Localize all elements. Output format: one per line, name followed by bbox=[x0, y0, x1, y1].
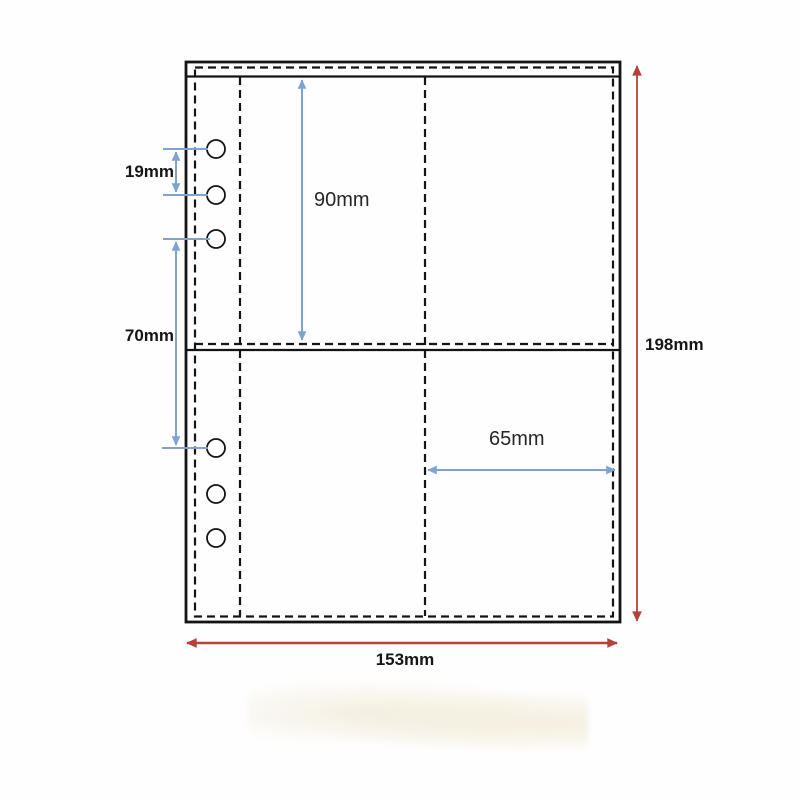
hole-group-gap-label: 70mm bbox=[110, 327, 174, 344]
stitch-border bbox=[195, 68, 613, 617]
watermark bbox=[248, 680, 588, 752]
pocket-height-label: 90mm bbox=[314, 190, 370, 210]
page-height-label: 198mm bbox=[645, 336, 704, 353]
binder-hole-1 bbox=[207, 140, 225, 158]
binder-hole-6 bbox=[207, 529, 225, 547]
binder-hole-5 bbox=[207, 485, 225, 503]
hole-pitch-label: 19mm bbox=[110, 163, 174, 180]
page-outline bbox=[186, 62, 620, 622]
page-width-label: 153mm bbox=[355, 651, 455, 668]
binder-hole-2 bbox=[207, 186, 225, 204]
pocket-width-label: 65mm bbox=[489, 429, 545, 449]
binder-hole-4 bbox=[207, 439, 225, 457]
binder-page-dimension-diagram: 19mm 70mm 90mm 65mm 198mm 153mm bbox=[0, 0, 800, 800]
